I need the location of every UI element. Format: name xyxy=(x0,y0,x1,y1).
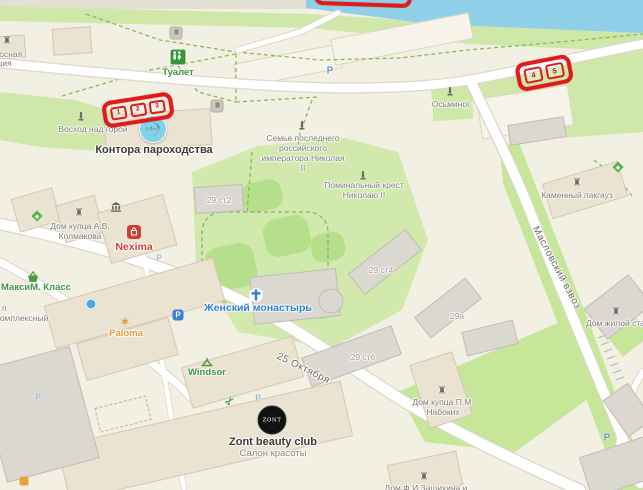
poi-label-convent[interactable]: Женский монастырь xyxy=(204,303,312,313)
poi-label-windsor[interactable]: Windsor xyxy=(188,368,226,378)
hanger-icon[interactable] xyxy=(201,357,213,367)
poi-label-toilet[interactable]: Туалет xyxy=(162,68,194,78)
church-cross-icon[interactable] xyxy=(249,288,264,303)
monument-icon[interactable] xyxy=(77,112,86,123)
parking-icon[interactable]: P xyxy=(604,433,611,444)
building-number-29a: 29а xyxy=(450,311,464,321)
parking-icon[interactable]: P xyxy=(173,310,184,321)
parking-icon[interactable]: P xyxy=(156,254,161,263)
poi-label-memorial-cross[interactable]: Поминальный крест Николаю II xyxy=(324,180,403,200)
dot-poi-icon[interactable] xyxy=(86,299,97,310)
castle-icon[interactable]: ♜ xyxy=(438,386,447,397)
poi-label-zont-title[interactable]: Zont beauty club xyxy=(229,437,317,447)
annotation-marker-1: 1 xyxy=(110,105,128,120)
poi-label-steamship-office[interactable]: Контора пароходства xyxy=(95,145,212,155)
poi-label-zont-subtitle: Салон красоты xyxy=(240,449,307,459)
castle-icon[interactable]: ♜ xyxy=(573,178,582,189)
poi-label-octopus[interactable]: Осьминог xyxy=(432,99,470,109)
parking-icon[interactable]: P xyxy=(327,66,334,77)
castle-icon[interactable]: ♜ xyxy=(75,208,84,219)
poi-badge-icon[interactable] xyxy=(20,477,29,486)
poi-badge-icon[interactable] xyxy=(170,27,183,40)
poi-label-pump-station-2[interactable]: станция xyxy=(0,58,12,68)
annotation-marker-5: 5 xyxy=(544,62,565,80)
annotation-marker-4: 4 xyxy=(523,66,544,84)
monument-icon[interactable] xyxy=(446,87,455,98)
bank-columns-icon[interactable] xyxy=(110,202,122,212)
poi-label-stone-warehouse[interactable]: Каменный пакгауз xyxy=(541,190,613,200)
parking-icon[interactable]: P xyxy=(255,394,260,403)
building-number-29s4: 29 ст4 xyxy=(369,265,394,275)
poi-label-paloma[interactable]: Paloma xyxy=(109,329,143,339)
poi-label-nexima[interactable]: Nexima xyxy=(115,242,152,252)
parking-icon[interactable]: P xyxy=(35,393,40,402)
star-poi-icon[interactable]: ✶ xyxy=(120,316,129,329)
poi-label-kolmakov-house[interactable]: Дом купца А.В. Колмакова xyxy=(50,221,109,241)
castle-icon[interactable]: ♜ xyxy=(612,307,621,318)
castle-icon[interactable]: ♜ xyxy=(3,36,12,47)
poi-label-partial-p: п xyxy=(2,303,7,313)
monument-icon[interactable] xyxy=(298,121,307,132)
poi-label-nabokikh-house[interactable]: Дом купца П.М. Набоких xyxy=(412,397,473,417)
poi-label-zashikhin-house[interactable]: Дом Ф.И.Зашихина и xyxy=(384,483,467,490)
building-number-29s6: 29 ст6 xyxy=(351,352,376,362)
castle-icon[interactable]: ♜ xyxy=(420,472,429,483)
poi-badge-icon[interactable] xyxy=(211,100,224,113)
building-number-29s2: 29 ст2 xyxy=(207,195,232,205)
annotation-marker-3: 3 xyxy=(148,99,166,114)
shopping-bag-icon[interactable] xyxy=(127,225,141,239)
poi-label-maxim-class[interactable]: МаксиМ. Класс xyxy=(1,283,71,293)
annotation-marker-2: 2 xyxy=(129,102,147,117)
wc-icon[interactable] xyxy=(170,49,187,66)
map-canvas[interactable]: ♜ ⚓ P ♜ ♜ ♜ P P ✶ ✂ P P ZONT ♜ P ♜ xyxy=(0,0,643,490)
poi-label-residential-house[interactable]: Дом жилой станц xyxy=(586,318,643,328)
zont-logo-icon[interactable]: ZONT xyxy=(258,406,287,435)
poi-label-imperial-family[interactable]: Семье последнего российского императора … xyxy=(261,133,344,173)
poi-label-kompleksny: комплексный xyxy=(0,313,48,323)
